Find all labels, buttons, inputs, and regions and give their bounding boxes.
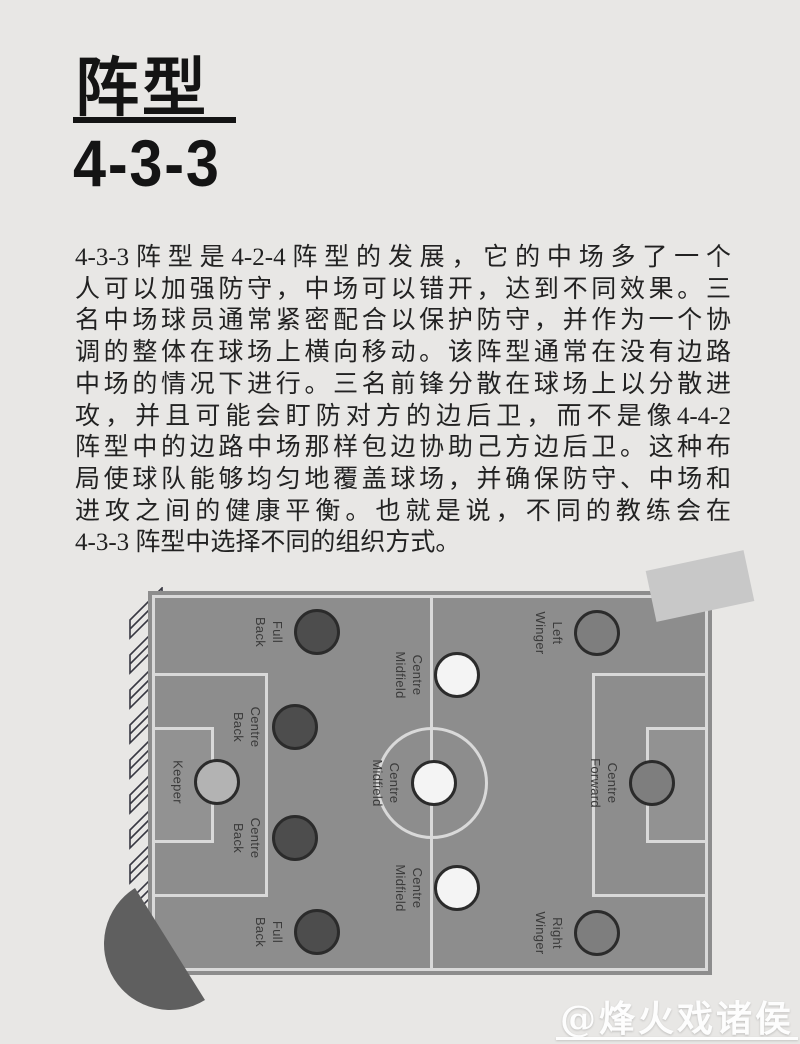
paragraph-line: 4-3-3 阵型中选择不同的组织方式。	[75, 527, 731, 559]
player-right-winger	[574, 910, 620, 956]
paragraph-line: 进攻之间的健康平衡。也就是说，不同的教练会在	[75, 496, 731, 528]
player-centre-back-top	[272, 704, 318, 750]
player-label-right-winger: Right Winger	[532, 912, 566, 955]
player-label-full-back-top: Full Back	[252, 617, 286, 647]
player-label-left-winger: Left Winger	[532, 612, 566, 655]
player-label-keeper: Keeper	[170, 760, 187, 804]
paragraph-line: 阵型中的边路中场那样包边协助己方边后卫。这种布	[75, 432, 731, 464]
player-label-centre-midfield-bottom: Centre Midfield	[392, 864, 426, 911]
player-label-centre-midfield-top: Centre Midfield	[392, 651, 426, 698]
player-keeper	[194, 759, 240, 805]
watermark: @烽火戏诸侯	[552, 990, 800, 1042]
player-centre-back-bottom	[272, 815, 318, 861]
paragraph-line: 中场的情况下进行。三名前锋分散在球场上以分散进	[75, 369, 731, 401]
watermark-underline	[556, 1037, 798, 1040]
paragraph-line: 人可以加强防守，中场可以错开，达到不同效果。三	[75, 274, 731, 306]
player-centre-forward	[629, 760, 675, 806]
player-label-centre-midfield-centre: Centre Midfield	[369, 759, 403, 806]
paragraph-line: 局使球队能够均匀地覆盖球场，并确保防守、中场和	[75, 464, 731, 496]
poster-page: 阵型 4-3-3 4-3-3阵型是4-2-4阵型的发展，它的中场多了一个人可以加…	[0, 0, 800, 1044]
player-centre-midfield-bottom	[434, 865, 480, 911]
player-centre-midfield-centre	[411, 760, 457, 806]
player-full-back-top	[294, 609, 340, 655]
article-paragraph: 4-3-3阵型是4-2-4阵型的发展，它的中场多了一个人可以加强防守，中场可以错…	[75, 242, 731, 559]
player-label-centre-back-bottom: Centre Back	[230, 818, 264, 859]
formation-diagram: KeeperFull BackCentre BackCentre BackFul…	[0, 560, 800, 1044]
player-label-centre-back-top: Centre Back	[230, 707, 264, 748]
paragraph-line: 名中场球员通常紧密配合以保护防守，并作为一个协	[75, 305, 731, 337]
player-full-back-bottom	[294, 909, 340, 955]
paragraph-line: 攻，并且可能会盯防对方的边后卫，而不是像4-4-2	[75, 401, 731, 433]
player-left-winger	[574, 610, 620, 656]
paragraph-line: 调的整体在球场上横向移动。该阵型通常在没有边路	[75, 337, 731, 369]
paragraph-line: 4-3-3阵型是4-2-4阵型的发展，它的中场多了一个	[75, 242, 731, 274]
player-centre-midfield-top	[434, 652, 480, 698]
title-underline	[73, 117, 236, 123]
player-label-full-back-bottom: Full Back	[252, 917, 286, 947]
formation-subtitle: 4-3-3	[73, 130, 221, 196]
page-title: 阵型	[75, 56, 209, 120]
player-label-centre-forward: Centre Forward	[587, 758, 621, 808]
